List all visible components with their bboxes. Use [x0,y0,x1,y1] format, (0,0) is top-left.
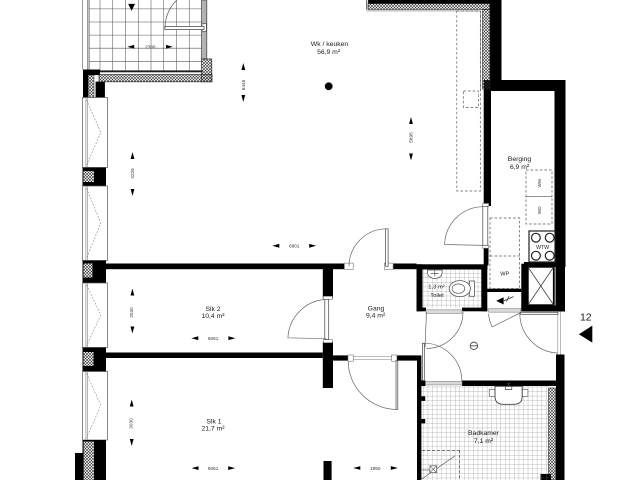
svg-text:5061: 5061 [208,466,219,471]
svg-text:21,7 m²: 21,7 m² [201,425,225,432]
svg-text:5061: 5061 [208,336,219,341]
svg-text:6445: 6445 [241,79,246,90]
svg-text:5695: 5695 [409,132,414,143]
svg-text:4225: 4225 [130,168,135,179]
svg-text:9,4 m²: 9,4 m² [366,312,386,319]
svg-text:7,1 m²: 7,1 m² [474,438,494,445]
svg-text:3030: 3030 [129,418,134,429]
svg-text:12: 12 [580,312,592,324]
svg-text:56,9 m²: 56,9 m² [317,49,341,56]
svg-text:6,9 m²: 6,9 m² [510,164,530,171]
svg-text:2380: 2380 [145,44,156,49]
svg-text:WP: WP [500,271,509,277]
svg-text:Berging: Berging [508,156,532,163]
svg-text:WM: WM [537,179,542,187]
svg-text:Wk / keuken: Wk / keuken [311,41,349,48]
svg-text:Badkamer: Badkamer [468,430,500,437]
svg-text:6801: 6801 [289,244,300,249]
svg-text:Toilet: Toilet [430,293,444,299]
svg-text:WD: WD [537,206,542,214]
svg-text:2030: 2030 [129,307,134,318]
svg-text:1,3 m²: 1,3 m² [428,285,444,291]
svg-text:1950: 1950 [370,466,381,471]
svg-text:WTW: WTW [536,245,549,251]
svg-text:10,4 m²: 10,4 m² [201,313,225,320]
